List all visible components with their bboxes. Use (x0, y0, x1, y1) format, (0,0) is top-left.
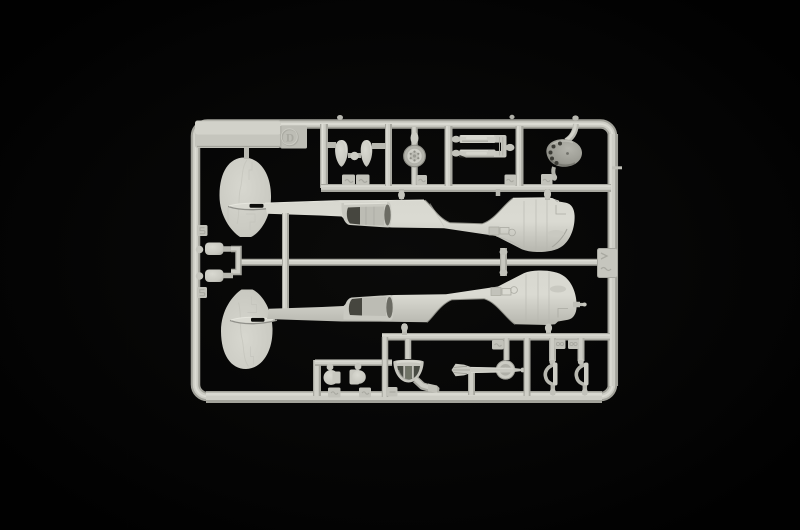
svg-text:D: D (286, 133, 294, 145)
